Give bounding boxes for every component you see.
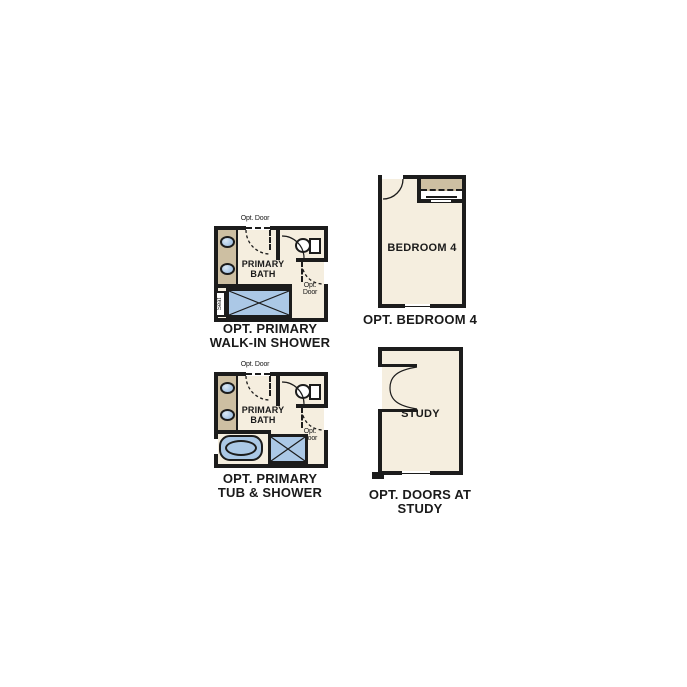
plan-title: OPT. DOORS AT STUDY (360, 488, 480, 516)
opt-door-dashed-leaf (301, 261, 303, 282)
seat-label: Seat (218, 298, 224, 310)
closet-opening (431, 200, 451, 202)
bathtub (219, 435, 263, 461)
plan-title: OPT. PRIMARY TUB & SHOWER (203, 472, 337, 500)
plan-title: OPT. PRIMARY WALK-IN SHOWER (203, 322, 337, 350)
floorplan-options-sheet: Opt. Door Opt. Door PRIMARY BATH (0, 0, 687, 687)
wc-partition-wall (276, 226, 280, 260)
toilet-tank-icon (309, 238, 321, 254)
opt-door-dashed-line (246, 373, 270, 375)
door-opening-gap (324, 262, 328, 284)
opt-door-top-label: Opt. Door (223, 216, 287, 223)
plan-title: OPT. BEDROOM 4 (360, 313, 480, 327)
plan-opt-primary-tub-and-shower: Opt. Door Opt. Door PRIMARY BATH (203, 360, 337, 510)
door-opening-gap (324, 408, 328, 430)
opt-door-dashed-leaf (269, 230, 271, 250)
window-icon (402, 471, 430, 475)
opt-door-dashed-leaf (301, 407, 303, 428)
sink-icon (220, 382, 235, 394)
plan-opt-primary-walk-in-shower: Opt. Door Opt. Door PRIMARY BATH (203, 214, 337, 364)
door-jamb-wall (378, 364, 417, 367)
door-opening-gap (382, 175, 403, 179)
opt-door-dashed-line (302, 260, 324, 262)
closet-shelf-line (426, 196, 457, 198)
room-label-bedroom-4: BEDROOM 4 (378, 242, 466, 254)
room-label-primary-bath: PRIMARY BATH (233, 259, 293, 279)
opt-door-dashed-line (302, 406, 324, 408)
toilet-tank-icon (309, 384, 321, 400)
plan-opt-bedroom-4: BEDROOM 4 OPT. BEDROOM 4 (360, 166, 480, 336)
wc-partition-wall (276, 372, 280, 406)
opt-door-top-label: Opt. Door (223, 362, 287, 369)
room-label-study: STUDY (378, 408, 463, 420)
opt-door-side-label: Opt. Door (296, 283, 324, 296)
shower (268, 434, 308, 464)
shower-seat: Seat (215, 291, 226, 317)
room-label-primary-bath: PRIMARY BATH (233, 405, 293, 425)
door-opening-gap (378, 367, 382, 409)
opt-door-dashed-line (246, 227, 270, 229)
plan-opt-doors-at-study: STUDY OPT. DOORS AT STUDY (360, 340, 480, 515)
divider-wall (214, 430, 271, 434)
sink-icon (220, 236, 235, 248)
walk-in-shower (226, 288, 292, 318)
opt-door-dashed-leaf (269, 376, 271, 396)
tub-ledge (214, 439, 218, 454)
wall-corner-notch (372, 472, 384, 479)
closet-shelf-rod (421, 179, 462, 191)
bathtub-basin (225, 440, 257, 456)
window-icon (405, 304, 430, 308)
